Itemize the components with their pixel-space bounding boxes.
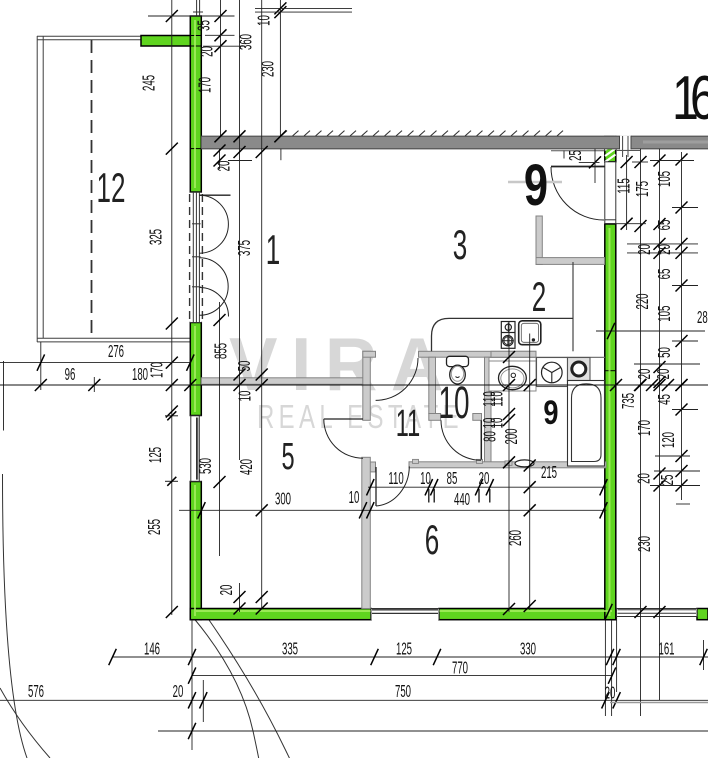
svg-text:770: 770 (452, 657, 468, 677)
svg-text:25: 25 (565, 150, 585, 161)
svg-text:255: 255 (144, 519, 164, 535)
svg-text:276: 276 (108, 341, 124, 361)
svg-text:146: 146 (144, 639, 160, 659)
svg-text:105: 105 (654, 171, 674, 187)
svg-text:170: 170 (146, 362, 166, 378)
svg-text:VIRA: VIRA (229, 322, 457, 406)
svg-text:330: 330 (520, 639, 536, 659)
svg-text:10: 10 (253, 15, 273, 26)
svg-text:35: 35 (193, 20, 213, 31)
svg-text:260: 260 (505, 530, 525, 546)
svg-text:440: 440 (454, 489, 470, 509)
svg-text:120: 120 (658, 432, 678, 448)
svg-text:50: 50 (654, 347, 674, 358)
svg-text:10: 10 (420, 468, 431, 488)
svg-text:325: 325 (145, 229, 165, 245)
svg-text:96: 96 (65, 364, 76, 384)
svg-text:576: 576 (28, 681, 44, 701)
svg-text:10: 10 (486, 418, 506, 429)
svg-text:20: 20 (634, 244, 654, 255)
svg-text:110: 110 (486, 391, 506, 406)
svg-text:2: 2 (532, 274, 546, 321)
svg-text:20: 20 (605, 682, 616, 702)
svg-text:20: 20 (654, 244, 674, 255)
svg-text:80: 80 (479, 431, 499, 442)
svg-text:65: 65 (654, 269, 674, 280)
svg-text:20: 20 (653, 369, 673, 380)
svg-text:6: 6 (425, 517, 439, 564)
svg-text:855: 855 (210, 343, 230, 359)
svg-text:170: 170 (194, 77, 214, 93)
svg-text:215: 215 (541, 462, 557, 482)
svg-text:375: 375 (234, 240, 254, 256)
svg-text:20: 20 (479, 468, 490, 488)
svg-text:65: 65 (654, 220, 674, 231)
svg-text:125: 125 (145, 447, 165, 463)
svg-text:735: 735 (618, 393, 638, 409)
svg-text:161: 161 (658, 639, 674, 659)
svg-text:115: 115 (613, 178, 633, 193)
svg-text:12: 12 (97, 165, 126, 212)
svg-text:10: 10 (438, 377, 469, 427)
svg-text:360: 360 (235, 34, 255, 50)
svg-text:11: 11 (396, 401, 420, 444)
svg-text:420: 420 (236, 459, 256, 475)
svg-text:220: 220 (632, 293, 652, 309)
svg-text:1: 1 (266, 227, 280, 274)
svg-text:300: 300 (275, 488, 291, 508)
svg-text:20: 20 (633, 473, 653, 484)
svg-text:280: 280 (697, 307, 708, 327)
svg-text:20: 20 (216, 585, 236, 596)
svg-text:110: 110 (388, 468, 403, 488)
svg-text:20: 20 (196, 46, 216, 57)
svg-text:335: 335 (282, 639, 298, 659)
svg-text:20: 20 (173, 681, 184, 701)
svg-text:245: 245 (138, 75, 158, 91)
svg-text:9: 9 (524, 153, 548, 217)
svg-text:20: 20 (634, 369, 654, 380)
svg-text:6: 6 (690, 63, 708, 132)
svg-text:25: 25 (657, 475, 677, 486)
svg-text:750: 750 (395, 681, 411, 701)
svg-text:530: 530 (195, 458, 215, 474)
svg-text:175: 175 (632, 181, 652, 197)
svg-text:230: 230 (634, 536, 654, 552)
svg-text:9: 9 (543, 393, 558, 432)
svg-text:200: 200 (501, 428, 521, 444)
svg-text:50: 50 (234, 361, 254, 372)
svg-text:85: 85 (447, 468, 458, 488)
svg-text:10: 10 (349, 487, 360, 507)
svg-text:3: 3 (453, 222, 467, 269)
svg-text:45: 45 (654, 394, 674, 405)
svg-text:230: 230 (257, 61, 277, 77)
svg-text:5: 5 (281, 434, 294, 477)
svg-text:125: 125 (396, 639, 412, 659)
svg-text:20: 20 (213, 161, 233, 172)
svg-text:10: 10 (234, 391, 254, 402)
svg-text:105: 105 (654, 306, 674, 322)
svg-text:170: 170 (634, 420, 654, 436)
